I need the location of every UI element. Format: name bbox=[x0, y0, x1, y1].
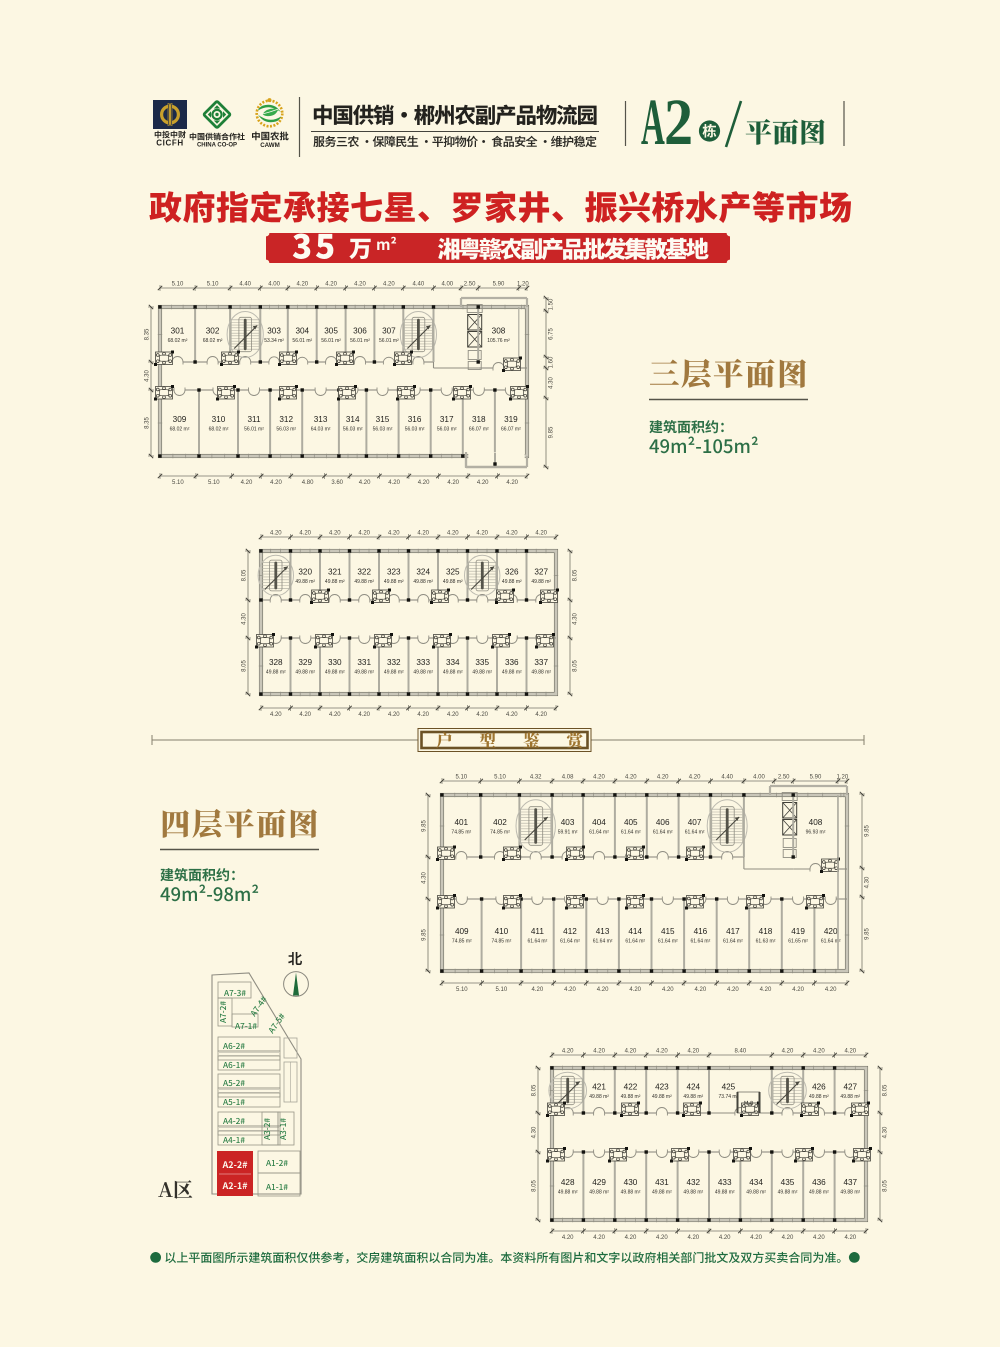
svg-text:317: 317 bbox=[440, 415, 454, 424]
svg-text:434: 434 bbox=[749, 1178, 763, 1187]
svg-text:413: 413 bbox=[596, 927, 610, 936]
svg-text:4.20: 4.20 bbox=[358, 531, 370, 537]
svg-text:4.20: 4.20 bbox=[750, 1235, 762, 1241]
svg-text:309: 309 bbox=[173, 415, 187, 424]
svg-text:49.88 m²: 49.88 m² bbox=[384, 670, 404, 676]
svg-text:68.02 m²: 68.02 m² bbox=[170, 427, 190, 433]
svg-text:49.88 m²: 49.88 m² bbox=[266, 670, 286, 676]
svg-text:431: 431 bbox=[655, 1178, 669, 1187]
svg-text:4.20: 4.20 bbox=[562, 1235, 574, 1241]
svg-text:56.01 m²: 56.01 m² bbox=[379, 338, 399, 344]
svg-text:61.64 m²: 61.64 m² bbox=[685, 830, 705, 836]
svg-text:4.20: 4.20 bbox=[506, 480, 518, 486]
svg-text:4.30: 4.30 bbox=[145, 370, 151, 382]
svg-text:49.88 m²: 49.88 m² bbox=[443, 579, 463, 585]
svg-text:74.85 m²: 74.85 m² bbox=[490, 830, 510, 836]
svg-text:49.88 m²: 49.88 m² bbox=[413, 670, 433, 676]
svg-text:426: 426 bbox=[812, 1083, 826, 1092]
svg-text:425: 425 bbox=[722, 1083, 736, 1092]
svg-text:49.88 m²: 49.88 m² bbox=[295, 670, 315, 676]
svg-text:4.20: 4.20 bbox=[629, 987, 641, 993]
svg-text:CAWM: CAWM bbox=[260, 142, 280, 149]
svg-text:405: 405 bbox=[624, 818, 638, 827]
svg-text:334: 334 bbox=[446, 658, 460, 667]
svg-text:429: 429 bbox=[592, 1178, 606, 1187]
svg-text:CICFH: CICFH bbox=[156, 139, 183, 148]
svg-text:5.10: 5.10 bbox=[172, 480, 184, 486]
svg-text:4.20: 4.20 bbox=[476, 712, 488, 718]
svg-text:5.10: 5.10 bbox=[496, 987, 508, 993]
svg-text:414: 414 bbox=[628, 927, 642, 936]
svg-text:5.10: 5.10 bbox=[208, 480, 220, 486]
svg-text:61.64 m²: 61.64 m² bbox=[723, 939, 743, 945]
svg-text:308: 308 bbox=[492, 327, 506, 336]
svg-text:64.03 m²: 64.03 m² bbox=[311, 427, 331, 433]
svg-text:401: 401 bbox=[454, 818, 468, 827]
svg-text:49.88 m²: 49.88 m² bbox=[683, 1190, 703, 1196]
svg-text:68.02 m²: 68.02 m² bbox=[203, 338, 223, 344]
svg-text:319: 319 bbox=[504, 415, 518, 424]
svg-text:49.88 m²: 49.88 m² bbox=[531, 670, 551, 676]
svg-text:411: 411 bbox=[531, 927, 544, 936]
svg-text:49.88 m²: 49.88 m² bbox=[502, 670, 522, 676]
svg-text:4.20: 4.20 bbox=[447, 712, 459, 718]
svg-text:410: 410 bbox=[495, 927, 509, 936]
svg-text:417: 417 bbox=[726, 927, 740, 936]
svg-text:49.88 m²: 49.88 m² bbox=[715, 1190, 735, 1196]
svg-text:421: 421 bbox=[592, 1083, 606, 1092]
svg-text:418: 418 bbox=[759, 927, 773, 936]
svg-text:311: 311 bbox=[247, 415, 260, 424]
svg-text:61.64 m²: 61.64 m² bbox=[621, 830, 641, 836]
svg-text:96.93 m²: 96.93 m² bbox=[806, 830, 826, 836]
svg-text:49.88 m²: 49.88 m² bbox=[809, 1190, 829, 1196]
svg-text:61.64 m²: 61.64 m² bbox=[528, 939, 548, 945]
svg-text:61.64 m²: 61.64 m² bbox=[625, 939, 645, 945]
svg-text:8.05: 8.05 bbox=[242, 569, 248, 581]
svg-text:9.85: 9.85 bbox=[422, 820, 428, 832]
svg-text:8.05: 8.05 bbox=[883, 1180, 889, 1192]
svg-text:56.03 m²: 56.03 m² bbox=[405, 427, 425, 433]
svg-text:4.20: 4.20 bbox=[656, 1049, 668, 1055]
svg-text:331: 331 bbox=[357, 658, 371, 667]
svg-text:9.85: 9.85 bbox=[422, 929, 428, 941]
svg-text:325: 325 bbox=[446, 568, 460, 577]
svg-text:4.30: 4.30 bbox=[532, 1126, 538, 1138]
svg-text:4.20: 4.20 bbox=[657, 775, 669, 781]
svg-text:4.20: 4.20 bbox=[625, 775, 637, 781]
svg-text:4.20: 4.20 bbox=[388, 712, 400, 718]
svg-text:5.10: 5.10 bbox=[456, 987, 468, 993]
svg-text:74.85 m²: 74.85 m² bbox=[451, 830, 471, 836]
svg-text:4.32: 4.32 bbox=[530, 775, 542, 781]
svg-text:4.20: 4.20 bbox=[270, 480, 282, 486]
svg-text:8.35: 8.35 bbox=[145, 417, 151, 429]
svg-text:4.20: 4.20 bbox=[535, 531, 547, 537]
svg-text:4.20: 4.20 bbox=[388, 480, 400, 486]
svg-text:61.64 m²: 61.64 m² bbox=[653, 830, 673, 836]
svg-text:CHINA CO-OP: CHINA CO-OP bbox=[197, 143, 237, 149]
svg-text:8.35: 8.35 bbox=[145, 328, 151, 340]
svg-text:320: 320 bbox=[298, 568, 312, 577]
svg-text:4.20: 4.20 bbox=[477, 480, 489, 486]
svg-text:402: 402 bbox=[493, 818, 507, 827]
svg-text:49.88 m²: 49.88 m² bbox=[443, 670, 463, 676]
svg-text:4.20: 4.20 bbox=[358, 712, 370, 718]
svg-text:435: 435 bbox=[781, 1178, 795, 1187]
svg-text:333: 333 bbox=[416, 658, 430, 667]
svg-text:4.40: 4.40 bbox=[413, 282, 425, 288]
svg-text:416: 416 bbox=[694, 927, 708, 936]
svg-text:424: 424 bbox=[686, 1083, 700, 1092]
svg-text:49.88 m²: 49.88 m² bbox=[295, 579, 315, 585]
svg-text:329: 329 bbox=[298, 658, 312, 667]
svg-text:1.60: 1.60 bbox=[549, 356, 555, 368]
svg-text:5.10: 5.10 bbox=[455, 775, 467, 781]
svg-text:4.20: 4.20 bbox=[687, 1235, 699, 1241]
svg-text:8.05: 8.05 bbox=[532, 1084, 538, 1096]
svg-text:4.20: 4.20 bbox=[329, 531, 341, 537]
svg-text:4.30: 4.30 bbox=[573, 613, 579, 625]
svg-text:61.64 m²: 61.64 m² bbox=[593, 939, 613, 945]
svg-text:428: 428 bbox=[561, 1178, 575, 1187]
svg-text:56.03 m²: 56.03 m² bbox=[343, 427, 363, 433]
svg-text:4.20: 4.20 bbox=[418, 480, 430, 486]
svg-text:4.00: 4.00 bbox=[753, 775, 765, 781]
svg-text:105.76 m²: 105.76 m² bbox=[487, 338, 510, 344]
svg-text:4.20: 4.20 bbox=[782, 1049, 794, 1055]
svg-text:306: 306 bbox=[353, 327, 367, 336]
svg-text:4.20: 4.20 bbox=[689, 775, 701, 781]
svg-text:4.20: 4.20 bbox=[564, 987, 576, 993]
svg-text:336: 336 bbox=[505, 658, 519, 667]
svg-text:49.88 m²: 49.88 m² bbox=[354, 670, 374, 676]
svg-text:404: 404 bbox=[592, 818, 606, 827]
svg-text:4.40: 4.40 bbox=[239, 282, 251, 288]
svg-text:9.85: 9.85 bbox=[865, 928, 871, 940]
svg-text:432: 432 bbox=[686, 1178, 700, 1187]
svg-text:49.88 m²: 49.88 m² bbox=[384, 579, 404, 585]
svg-text:337: 337 bbox=[534, 658, 548, 667]
svg-text:4.20: 4.20 bbox=[625, 1235, 637, 1241]
svg-text:8.05: 8.05 bbox=[242, 660, 248, 672]
svg-text:49.88 m²: 49.88 m² bbox=[778, 1190, 798, 1196]
svg-text:407: 407 bbox=[688, 818, 702, 827]
svg-text:406: 406 bbox=[656, 818, 670, 827]
svg-text:49.88 m²: 49.88 m² bbox=[589, 1094, 609, 1100]
svg-text:4.20: 4.20 bbox=[506, 712, 518, 718]
svg-text:56.01 m²: 56.01 m² bbox=[321, 338, 341, 344]
svg-text:4.20: 4.20 bbox=[241, 480, 253, 486]
svg-text:8.40: 8.40 bbox=[735, 1049, 747, 1055]
svg-text:4.20: 4.20 bbox=[813, 1049, 825, 1055]
svg-text:4.20: 4.20 bbox=[695, 987, 707, 993]
svg-text:61.64 m²: 61.64 m² bbox=[589, 830, 609, 836]
svg-text:422: 422 bbox=[624, 1083, 638, 1092]
svg-text:49.88 m²: 49.88 m² bbox=[746, 1190, 766, 1196]
svg-text:310: 310 bbox=[212, 415, 226, 424]
svg-text:4.30: 4.30 bbox=[883, 1126, 889, 1138]
svg-text:303: 303 bbox=[267, 327, 281, 336]
svg-text:419: 419 bbox=[791, 927, 805, 936]
svg-text:313: 313 bbox=[314, 415, 328, 424]
svg-text:4.20: 4.20 bbox=[727, 987, 739, 993]
svg-text:4.20: 4.20 bbox=[270, 712, 282, 718]
svg-text:4.20: 4.20 bbox=[593, 775, 605, 781]
svg-text:68.02 m²: 68.02 m² bbox=[209, 427, 229, 433]
svg-text:305: 305 bbox=[324, 327, 338, 336]
svg-text:4.20: 4.20 bbox=[296, 282, 308, 288]
svg-text:4.30: 4.30 bbox=[422, 872, 428, 884]
svg-text:49.88 m²: 49.88 m² bbox=[652, 1190, 672, 1196]
svg-text:5.10: 5.10 bbox=[207, 282, 219, 288]
svg-text:49.88 m²: 49.88 m² bbox=[652, 1094, 672, 1100]
svg-text:4.20: 4.20 bbox=[299, 712, 311, 718]
svg-text:315: 315 bbox=[376, 415, 390, 424]
svg-text:49.88 m²: 49.88 m² bbox=[325, 579, 345, 585]
svg-text:4.20: 4.20 bbox=[597, 987, 609, 993]
svg-text:4.20: 4.20 bbox=[417, 712, 429, 718]
svg-text:49.88 m²: 49.88 m² bbox=[840, 1190, 860, 1196]
svg-text:436: 436 bbox=[812, 1178, 826, 1187]
svg-text:49.88 m²: 49.88 m² bbox=[558, 1190, 578, 1196]
svg-text:326: 326 bbox=[505, 568, 519, 577]
svg-text:4.20: 4.20 bbox=[299, 531, 311, 537]
svg-text:68.02 m²: 68.02 m² bbox=[168, 338, 188, 344]
svg-text:433: 433 bbox=[718, 1178, 732, 1187]
svg-text:4.20: 4.20 bbox=[792, 987, 804, 993]
svg-text:4.20: 4.20 bbox=[383, 282, 395, 288]
svg-text:49.88 m²: 49.88 m² bbox=[621, 1190, 641, 1196]
svg-text:4.30: 4.30 bbox=[865, 876, 871, 888]
svg-text:4.80: 4.80 bbox=[302, 480, 314, 486]
svg-text:4.20: 4.20 bbox=[687, 1049, 699, 1055]
svg-text:56.01 m²: 56.01 m² bbox=[350, 338, 370, 344]
svg-text:316: 316 bbox=[408, 415, 422, 424]
svg-text:4.20: 4.20 bbox=[662, 987, 674, 993]
svg-text:4.20: 4.20 bbox=[417, 531, 429, 537]
svg-text:61.64 m²: 61.64 m² bbox=[691, 939, 711, 945]
svg-text:4.20: 4.20 bbox=[329, 712, 341, 718]
svg-text:304: 304 bbox=[295, 327, 309, 336]
svg-text:9.85: 9.85 bbox=[865, 825, 871, 837]
svg-text:74.85 m²: 74.85 m² bbox=[452, 939, 472, 945]
svg-text:4.20: 4.20 bbox=[593, 1235, 605, 1241]
svg-text:8.05: 8.05 bbox=[573, 660, 579, 672]
svg-text:61.64 m²: 61.64 m² bbox=[658, 939, 678, 945]
svg-text:49.88 m²: 49.88 m² bbox=[531, 579, 551, 585]
svg-text:56.03 m²: 56.03 m² bbox=[373, 427, 393, 433]
svg-text:6.75: 6.75 bbox=[549, 328, 555, 340]
svg-text:4.20: 4.20 bbox=[844, 1235, 856, 1241]
svg-text:4.20: 4.20 bbox=[593, 1049, 605, 1055]
svg-text:4.20: 4.20 bbox=[719, 1235, 731, 1241]
svg-text:314: 314 bbox=[346, 415, 360, 424]
svg-text:56.03 m²: 56.03 m² bbox=[276, 427, 296, 433]
svg-text:61.65 m²: 61.65 m² bbox=[788, 939, 808, 945]
svg-text:4.20: 4.20 bbox=[535, 712, 547, 718]
svg-text:4.20: 4.20 bbox=[447, 531, 459, 537]
svg-text:4.40: 4.40 bbox=[721, 775, 733, 781]
svg-text:4.20: 4.20 bbox=[506, 531, 518, 537]
svg-text:324: 324 bbox=[416, 568, 430, 577]
svg-text:4.30: 4.30 bbox=[242, 613, 248, 625]
svg-text:330: 330 bbox=[328, 658, 342, 667]
svg-text:409: 409 bbox=[455, 927, 469, 936]
svg-text:323: 323 bbox=[387, 568, 401, 577]
svg-text:4.08: 4.08 bbox=[562, 775, 574, 781]
svg-text:4.20: 4.20 bbox=[656, 1235, 668, 1241]
svg-text:5.90: 5.90 bbox=[493, 282, 505, 288]
svg-text:4.20: 4.20 bbox=[625, 1049, 637, 1055]
svg-text:302: 302 bbox=[206, 327, 220, 336]
svg-text:49.88 m²: 49.88 m² bbox=[413, 579, 433, 585]
svg-text:4.20: 4.20 bbox=[844, 1049, 856, 1055]
svg-text:4.20: 4.20 bbox=[388, 531, 400, 537]
svg-text:312: 312 bbox=[279, 415, 293, 424]
svg-text:322: 322 bbox=[357, 568, 371, 577]
svg-text:4.20: 4.20 bbox=[562, 1049, 574, 1055]
svg-text:49.88 m²: 49.88 m² bbox=[354, 579, 374, 585]
svg-text:9.85: 9.85 bbox=[549, 426, 555, 438]
svg-text:5.10: 5.10 bbox=[172, 282, 184, 288]
svg-text:307: 307 bbox=[382, 327, 396, 336]
svg-text:49.88 m²: 49.88 m² bbox=[621, 1094, 641, 1100]
svg-text:321: 321 bbox=[328, 568, 342, 577]
svg-text:4.00: 4.00 bbox=[441, 282, 453, 288]
svg-text:49.88 m²: 49.88 m² bbox=[809, 1094, 829, 1100]
svg-text:1.50: 1.50 bbox=[549, 298, 555, 310]
svg-text:5.90: 5.90 bbox=[810, 775, 822, 781]
svg-text:2.50: 2.50 bbox=[464, 282, 476, 288]
svg-text:403: 403 bbox=[561, 818, 575, 827]
svg-text:423: 423 bbox=[655, 1083, 669, 1092]
svg-text:4.20: 4.20 bbox=[359, 480, 371, 486]
svg-text:56.01 m²: 56.01 m² bbox=[244, 427, 264, 433]
svg-text:4.20: 4.20 bbox=[825, 987, 837, 993]
svg-text:66.07 m²: 66.07 m² bbox=[501, 427, 521, 433]
svg-text:53.34 m²: 53.34 m² bbox=[264, 338, 284, 344]
svg-text:61.63 m²: 61.63 m² bbox=[756, 939, 776, 945]
svg-text:427: 427 bbox=[843, 1083, 857, 1092]
svg-text:4.20: 4.20 bbox=[447, 480, 459, 486]
svg-text:430: 430 bbox=[624, 1178, 638, 1187]
svg-text:4.20: 4.20 bbox=[532, 987, 544, 993]
svg-text:4.20: 4.20 bbox=[325, 282, 337, 288]
svg-text:4.20: 4.20 bbox=[782, 1235, 794, 1241]
svg-text:1.20: 1.20 bbox=[517, 282, 529, 288]
svg-text:49.88 m²: 49.88 m² bbox=[840, 1094, 860, 1100]
svg-text:3.60: 3.60 bbox=[331, 480, 343, 486]
svg-text:301: 301 bbox=[171, 327, 185, 336]
svg-text:8.05: 8.05 bbox=[532, 1180, 538, 1192]
svg-text:73.74 m²: 73.74 m² bbox=[719, 1094, 739, 1100]
svg-text:8.05: 8.05 bbox=[573, 569, 579, 581]
svg-text:4.20: 4.20 bbox=[354, 282, 366, 288]
svg-text:327: 327 bbox=[534, 568, 548, 577]
svg-text:415: 415 bbox=[661, 927, 675, 936]
svg-text:66.07 m²: 66.07 m² bbox=[469, 427, 489, 433]
svg-text:420: 420 bbox=[824, 927, 838, 936]
svg-text:49.88 m²: 49.88 m² bbox=[502, 579, 522, 585]
svg-text:328: 328 bbox=[269, 658, 283, 667]
svg-text:4.20: 4.20 bbox=[270, 531, 282, 537]
svg-text:408: 408 bbox=[809, 818, 823, 827]
svg-text:437: 437 bbox=[843, 1178, 857, 1187]
svg-text:4.20: 4.20 bbox=[476, 531, 488, 537]
svg-text:318: 318 bbox=[472, 415, 486, 424]
svg-text:335: 335 bbox=[475, 658, 489, 667]
svg-text:4.20: 4.20 bbox=[760, 987, 772, 993]
svg-text:49.88 m²: 49.88 m² bbox=[472, 670, 492, 676]
svg-text:49.88 m²: 49.88 m² bbox=[325, 670, 345, 676]
svg-text:49.88 m²: 49.88 m² bbox=[683, 1094, 703, 1100]
svg-text:4.00: 4.00 bbox=[268, 282, 280, 288]
svg-text:61.64 m²: 61.64 m² bbox=[560, 939, 580, 945]
svg-text:56.03 m²: 56.03 m² bbox=[437, 427, 457, 433]
svg-text:56.01 m²: 56.01 m² bbox=[292, 338, 312, 344]
svg-text:2.50: 2.50 bbox=[778, 775, 790, 781]
svg-text:74.85 m²: 74.85 m² bbox=[492, 939, 512, 945]
svg-text:332: 332 bbox=[387, 658, 401, 667]
svg-text:49.88 m²: 49.88 m² bbox=[589, 1190, 609, 1196]
svg-text:412: 412 bbox=[563, 927, 577, 936]
svg-text:4.20: 4.20 bbox=[813, 1235, 825, 1241]
svg-text:5.10: 5.10 bbox=[494, 775, 506, 781]
svg-text:8.05: 8.05 bbox=[883, 1084, 889, 1096]
svg-text:59.91 m²: 59.91 m² bbox=[558, 830, 578, 836]
svg-text:4.30: 4.30 bbox=[549, 377, 555, 389]
